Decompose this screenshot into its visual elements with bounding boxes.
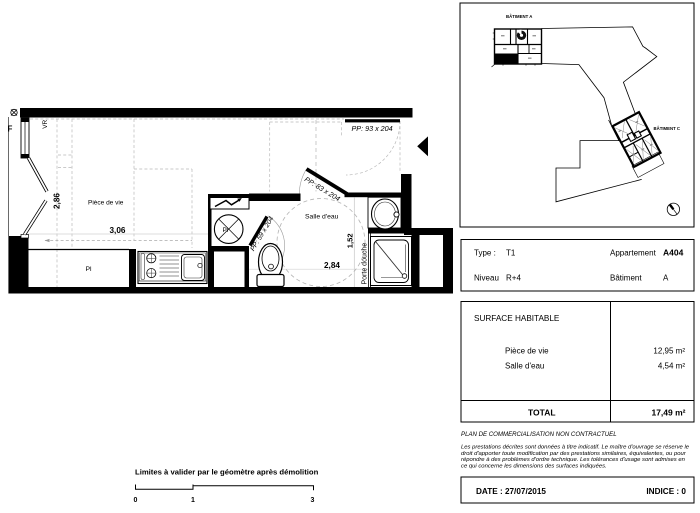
- svg-text:Limites à valider par le géomè: Limites à valider par le géomètre après …: [135, 467, 319, 476]
- svg-text:BÂTIMENT C: BÂTIMENT C: [654, 126, 681, 131]
- svg-text:4,54 m²: 4,54 m²: [658, 362, 685, 371]
- svg-text:2,86: 2,86: [53, 193, 62, 209]
- svg-text:12,95 m²: 12,95 m²: [653, 347, 685, 356]
- svg-text:ce qui concerne les dimensions: ce qui concerne les dimensions des surfa…: [461, 464, 607, 470]
- svg-text:Pièce de vie: Pièce de vie: [505, 347, 549, 356]
- svg-text:A: A: [663, 274, 669, 283]
- svg-text:Porte douche: Porte douche: [361, 243, 368, 285]
- svg-text:R+4: R+4: [506, 274, 521, 283]
- svg-text:T1: T1: [506, 249, 516, 258]
- svg-text:VR: VR: [42, 119, 49, 128]
- svg-text:Pl: Pl: [223, 227, 229, 234]
- svg-text:Niveau: Niveau: [474, 274, 499, 283]
- svg-text:Pl: Pl: [86, 266, 93, 273]
- svg-text:droit d'apporter toute modific: droit d'apporter toute modification par …: [461, 451, 687, 457]
- svg-text:Bâtiment: Bâtiment: [610, 274, 642, 283]
- svg-text:PP: 93 x 204: PP: 93 x 204: [352, 124, 393, 133]
- svg-text:BÂTIMENT A: BÂTIMENT A: [506, 14, 532, 19]
- svg-text:3: 3: [311, 497, 315, 504]
- svg-text:Pièce de vie: Pièce de vie: [88, 200, 124, 207]
- svg-text:1,52: 1,52: [345, 233, 354, 248]
- svg-text:TOTAL: TOTAL: [528, 408, 556, 418]
- svg-text:Appartement: Appartement: [610, 249, 657, 258]
- svg-text:0: 0: [134, 497, 138, 504]
- svg-text:Type :: Type :: [474, 249, 496, 258]
- svg-text:A404: A404: [663, 248, 684, 258]
- svg-text:1: 1: [191, 497, 195, 504]
- svg-text:Les prestations décrites sont: Les prestations décrites sont données à …: [461, 445, 690, 451]
- svg-text:INDICE : 0: INDICE : 0: [646, 487, 686, 496]
- svg-text:2,84: 2,84: [324, 261, 340, 270]
- svg-text:PLAN DE COMMERCIALISATION NON: PLAN DE COMMERCIALISATION NON CONTRACTUE…: [461, 431, 617, 438]
- svg-text:3,06: 3,06: [110, 226, 126, 235]
- svg-text:SURFACE HABITABLE: SURFACE HABITABLE: [474, 314, 560, 323]
- svg-text:répondre à des problèmes d'ord: répondre à des problèmes d'ordre techniq…: [461, 457, 686, 463]
- svg-text:DATE : 27/07/2015: DATE : 27/07/2015: [476, 487, 546, 496]
- svg-text:Salle d'eau: Salle d'eau: [305, 214, 339, 221]
- svg-text:Salle d'eau: Salle d'eau: [505, 362, 544, 371]
- svg-text:F: F: [8, 125, 13, 134]
- svg-text:17,49 m²: 17,49 m²: [651, 408, 685, 418]
